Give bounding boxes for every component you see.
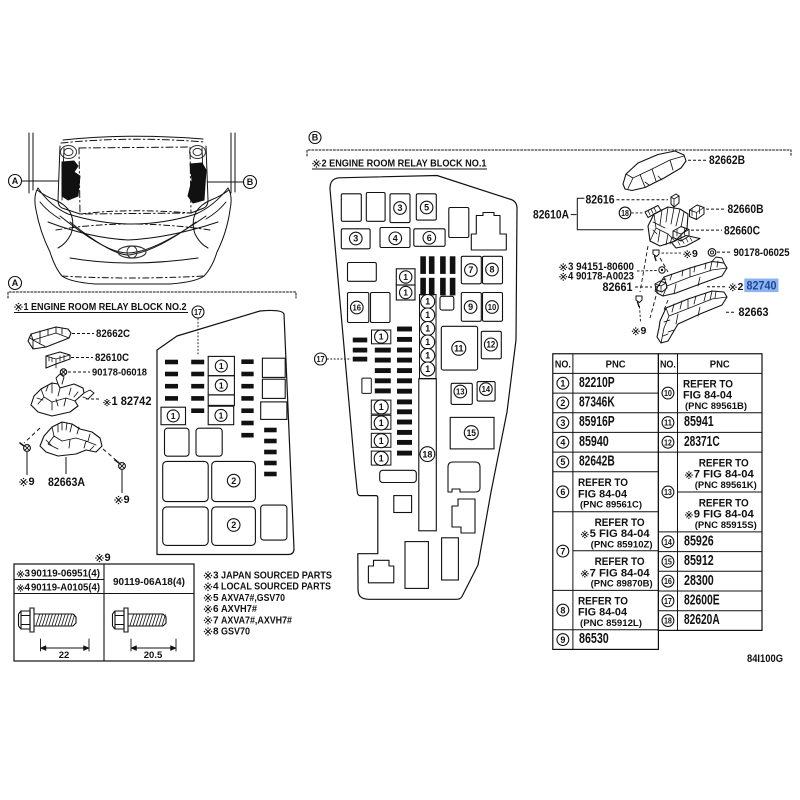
svg-text:84I100G: 84I100G xyxy=(747,653,783,665)
svg-text:85912: 85912 xyxy=(684,553,714,569)
svg-text:9: 9 xyxy=(641,325,647,337)
svg-text:A: A xyxy=(12,278,19,288)
svg-text:REFER TO: REFER TO xyxy=(595,517,645,529)
svg-text:5 FIG 84-04: 5 FIG 84-04 xyxy=(590,528,650,540)
svg-text:85940: 85940 xyxy=(579,434,609,450)
svg-text:1: 1 xyxy=(219,410,224,420)
svg-text:7: 7 xyxy=(213,615,219,626)
svg-text:8: 8 xyxy=(489,265,494,275)
svg-text:8: 8 xyxy=(213,627,219,638)
svg-text:9: 9 xyxy=(105,552,111,564)
svg-text:82660B: 82660B xyxy=(728,204,764,216)
svg-text:7 FIG 84-04: 7 FIG 84-04 xyxy=(590,567,650,579)
svg-text:REFER TO: REFER TO xyxy=(699,457,749,469)
svg-text:FIG 84-04: FIG 84-04 xyxy=(683,390,732,402)
svg-text:82660C: 82660C xyxy=(724,226,760,238)
svg-text:1: 1 xyxy=(379,402,384,412)
svg-text:4: 4 xyxy=(560,437,565,447)
svg-text:6: 6 xyxy=(213,604,219,615)
svg-text:1: 1 xyxy=(425,337,430,347)
svg-text:AXVH7#: AXVH7# xyxy=(221,604,257,615)
svg-text:17: 17 xyxy=(316,354,324,364)
svg-text:1: 1 xyxy=(425,324,430,334)
svg-text:86530: 86530 xyxy=(579,631,609,647)
svg-text:1: 1 xyxy=(219,380,224,390)
svg-text:18: 18 xyxy=(422,449,432,459)
svg-text:90178-06025: 90178-06025 xyxy=(734,247,790,259)
svg-text:8: 8 xyxy=(560,605,565,615)
svg-text:17: 17 xyxy=(664,596,672,606)
svg-text:1: 1 xyxy=(403,288,408,298)
svg-text:14: 14 xyxy=(664,537,672,547)
svg-text:3: 3 xyxy=(353,234,358,244)
svg-text:10: 10 xyxy=(488,302,497,312)
svg-text:1: 1 xyxy=(379,454,384,464)
svg-text:82210P: 82210P xyxy=(579,375,615,391)
svg-text:11: 11 xyxy=(664,418,672,428)
svg-text:1: 1 xyxy=(219,361,224,371)
svg-text:1: 1 xyxy=(379,436,384,446)
svg-text:3: 3 xyxy=(560,418,565,428)
svg-text:AXVA7#,GSV70: AXVA7#,GSV70 xyxy=(221,593,285,604)
svg-text:B: B xyxy=(312,133,319,143)
svg-text:11: 11 xyxy=(454,343,463,354)
svg-text:AXVA7#,AXVH7#: AXVA7#,AXVH7# xyxy=(221,615,292,626)
svg-text:5: 5 xyxy=(424,203,429,213)
svg-text:12: 12 xyxy=(664,437,672,447)
svg-text:7: 7 xyxy=(468,265,473,275)
svg-text:82620A: 82620A xyxy=(684,612,720,628)
svg-text:82616: 82616 xyxy=(586,195,615,207)
svg-text:18: 18 xyxy=(621,209,629,218)
svg-text:6: 6 xyxy=(560,487,565,497)
svg-text:10: 10 xyxy=(664,388,672,398)
svg-text:85916P: 85916P xyxy=(579,414,615,430)
svg-text:4: 4 xyxy=(25,583,31,594)
svg-text:90119-A0105(4): 90119-A0105(4) xyxy=(31,582,100,594)
svg-text:FIG 84-04: FIG 84-04 xyxy=(578,488,627,500)
svg-text:7: 7 xyxy=(560,546,565,556)
svg-text:PNC: PNC xyxy=(710,360,730,371)
svg-text:82610C: 82610C xyxy=(95,352,129,364)
svg-text:90119-06A18(4): 90119-06A18(4) xyxy=(113,576,185,588)
svg-text:2: 2 xyxy=(231,520,236,530)
svg-text:12: 12 xyxy=(487,340,496,350)
svg-text:28371C: 28371C xyxy=(684,434,720,450)
svg-text:82663: 82663 xyxy=(739,307,769,319)
svg-text:REFER TO: REFER TO xyxy=(595,556,645,568)
svg-text:LOCAL SOURCED PARTS: LOCAL SOURCED PARTS xyxy=(221,582,331,593)
svg-text:2: 2 xyxy=(560,398,565,408)
svg-text:4: 4 xyxy=(393,234,398,244)
svg-text:(PNC 89561C): (PNC 89561C) xyxy=(580,500,642,511)
svg-text:4: 4 xyxy=(213,582,219,593)
svg-text:GSV70: GSV70 xyxy=(221,627,250,638)
svg-text:(PNC 89870B): (PNC 89870B) xyxy=(591,578,653,589)
svg-text:7 FIG 84-04: 7 FIG 84-04 xyxy=(694,469,754,481)
svg-text:1: 1 xyxy=(403,272,408,282)
svg-text:NO.: NO. xyxy=(660,360,676,371)
svg-text:1: 1 xyxy=(425,310,430,320)
svg-text:82661: 82661 xyxy=(603,282,634,294)
svg-text:9: 9 xyxy=(560,635,565,645)
svg-text:1: 1 xyxy=(560,378,565,388)
svg-text:20.5: 20.5 xyxy=(144,650,163,661)
svg-text:82610A: 82610A xyxy=(533,210,569,222)
svg-text:13: 13 xyxy=(456,387,465,397)
svg-text:5: 5 xyxy=(213,593,219,604)
svg-text:3: 3 xyxy=(25,569,31,580)
svg-text:(PNC 85912L): (PNC 85912L) xyxy=(580,618,642,629)
svg-text:82662B: 82662B xyxy=(709,155,745,167)
svg-text:1: 1 xyxy=(425,351,430,361)
svg-text:4 90178-A0023: 4 90178-A0023 xyxy=(568,271,634,283)
svg-text:82600E: 82600E xyxy=(684,593,720,609)
svg-text:PNC: PNC xyxy=(606,360,626,371)
svg-text:A: A xyxy=(12,176,19,186)
svg-text:15: 15 xyxy=(664,556,672,566)
svg-text:9: 9 xyxy=(692,248,698,260)
svg-text:16: 16 xyxy=(353,303,362,313)
svg-text:90119-06951(4): 90119-06951(4) xyxy=(31,568,100,580)
svg-text:9: 9 xyxy=(124,494,130,506)
svg-text:14: 14 xyxy=(482,384,491,394)
svg-text:REFER TO: REFER TO xyxy=(578,596,628,608)
svg-text:18: 18 xyxy=(664,616,672,626)
svg-text:1: 1 xyxy=(171,411,176,421)
svg-text:85941: 85941 xyxy=(684,414,714,430)
svg-text:90178-06018: 90178-06018 xyxy=(92,367,147,379)
svg-text:1: 1 xyxy=(425,297,430,307)
svg-text:NO.: NO. xyxy=(555,360,571,371)
svg-text:82662C: 82662C xyxy=(96,328,130,340)
svg-text:REFER TO: REFER TO xyxy=(683,379,733,391)
svg-text:9 FIG 84-04: 9 FIG 84-04 xyxy=(694,509,754,521)
svg-text:1 82742: 1 82742 xyxy=(112,394,152,408)
svg-text:6: 6 xyxy=(427,233,432,243)
svg-text:3: 3 xyxy=(397,203,402,213)
svg-text:2: 2 xyxy=(231,476,236,486)
svg-text:82740: 82740 xyxy=(747,281,777,293)
svg-text:1: 1 xyxy=(379,418,384,428)
svg-text:REFER TO: REFER TO xyxy=(699,497,749,509)
svg-text:13: 13 xyxy=(664,487,672,497)
svg-text:(PNC 85915S): (PNC 85915S) xyxy=(695,520,757,531)
svg-text:2: 2 xyxy=(738,281,744,293)
svg-text:FIG 84-04: FIG 84-04 xyxy=(578,607,627,619)
svg-text:2 ENGINE ROOM RELAY BLOCK NO.1: 2 ENGINE ROOM RELAY BLOCK NO.1 xyxy=(322,158,487,170)
svg-text:B: B xyxy=(247,177,254,187)
svg-text:85926: 85926 xyxy=(684,533,714,549)
svg-text:82663A: 82663A xyxy=(48,475,85,489)
svg-text:87346K: 87346K xyxy=(579,395,615,411)
svg-text:28300: 28300 xyxy=(684,573,714,589)
svg-text:(PNC 89561K): (PNC 89561K) xyxy=(695,480,757,491)
svg-text:9: 9 xyxy=(29,476,35,488)
svg-text:1: 1 xyxy=(379,332,384,342)
svg-text:(PNC 89561B): (PNC 89561B) xyxy=(685,401,747,412)
svg-text:16: 16 xyxy=(664,576,672,586)
svg-text:9: 9 xyxy=(468,302,473,312)
svg-text:3: 3 xyxy=(213,571,219,582)
svg-text:REFER TO: REFER TO xyxy=(578,477,628,489)
svg-text:JAPAN SOURCED PARTS: JAPAN SOURCED PARTS xyxy=(221,571,332,582)
svg-text:22: 22 xyxy=(59,650,70,661)
svg-text:17: 17 xyxy=(194,307,202,317)
svg-text:(PNC 85910Z): (PNC 85910Z) xyxy=(591,539,653,550)
svg-text:82642B: 82642B xyxy=(579,454,615,470)
svg-text:1: 1 xyxy=(425,364,430,374)
svg-text:5: 5 xyxy=(560,457,565,467)
svg-text:1 ENGINE ROOM RELAY BLOCK NO.2: 1 ENGINE ROOM RELAY BLOCK NO.2 xyxy=(24,301,187,313)
svg-text:15: 15 xyxy=(467,427,476,438)
